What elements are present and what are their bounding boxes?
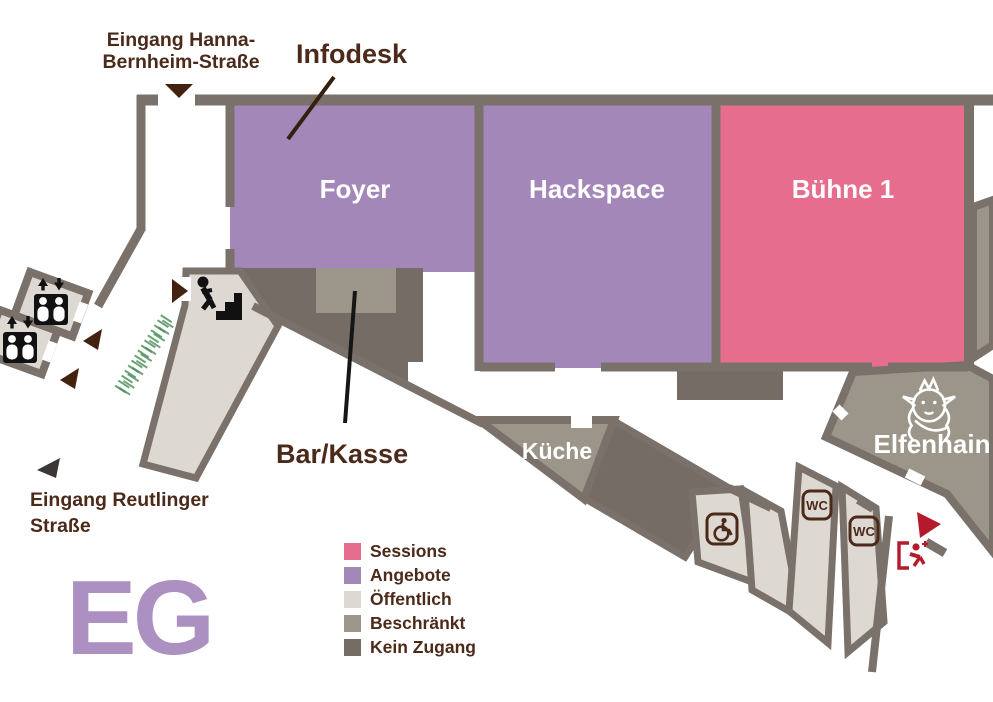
wc-icon-label: WC xyxy=(853,524,875,539)
room-label-hackspace: Hackspace xyxy=(529,174,665,204)
legend-label-sessions: Sessions xyxy=(370,541,447,561)
legend-swatch-beschraenkt xyxy=(344,615,361,632)
room-label-buehne1: Bühne 1 xyxy=(792,174,895,204)
legend-swatch-kein-zugang xyxy=(344,639,361,656)
legend-swatch-sessions xyxy=(344,543,361,560)
legend-label-oeffentlich: Öffentlich xyxy=(370,589,452,609)
floorplan-eg: WC WC Eingang Hanna- Bernheim-Straße Inf… xyxy=(0,0,993,702)
emergency-exit-arrow-icon xyxy=(917,512,941,538)
entrance-arrow-reutlinger-icon xyxy=(37,458,60,478)
entrance-arrow-elevator2-icon xyxy=(60,368,79,389)
backstage-block xyxy=(677,370,783,400)
entrance-arrow-elevator1-icon xyxy=(83,329,102,350)
entrance-arrow-hanna-icon xyxy=(165,84,193,98)
room-buehne1 xyxy=(716,100,969,368)
entrance-reutlinger-label-line2: Straße xyxy=(30,515,91,537)
floorplan-svg: WC WC Eingang Hanna- Bernheim-Straße Inf… xyxy=(0,0,993,702)
room-label-foyer: Foyer xyxy=(320,174,391,204)
floor-label-eg: EG xyxy=(66,559,211,677)
entrance-hanna-label-line2: Bernheim-Straße xyxy=(102,51,259,73)
legend-swatch-oeffentlich xyxy=(344,591,361,608)
bar-kasse-block xyxy=(316,268,396,313)
entrance-reutlinger-label-line1: Eingang Reutlinger xyxy=(30,489,209,511)
room-label-elfenhain: Elfenhain xyxy=(873,429,990,459)
legend-swatch-angebote xyxy=(344,567,361,584)
room-hackspace xyxy=(479,100,716,368)
legend: Sessions Angebote Öffentlich Beschränkt … xyxy=(344,541,476,657)
wc-icon-label: WC xyxy=(806,498,828,513)
room-label-kueche: Küche xyxy=(522,438,592,464)
legend-label-beschraenkt: Beschränkt xyxy=(370,613,465,633)
infodesk-label: Infodesk xyxy=(296,39,408,69)
emergency-exit-icon xyxy=(899,541,928,568)
bar-kasse-label: Bar/Kasse xyxy=(276,439,408,469)
legend-label-kein-zugang: Kein Zugang xyxy=(370,637,476,657)
entrance-hanna-label-line1: Eingang Hanna- xyxy=(107,29,255,51)
legend-label-angebote: Angebote xyxy=(370,565,451,585)
room-right-of-stage xyxy=(973,200,993,358)
